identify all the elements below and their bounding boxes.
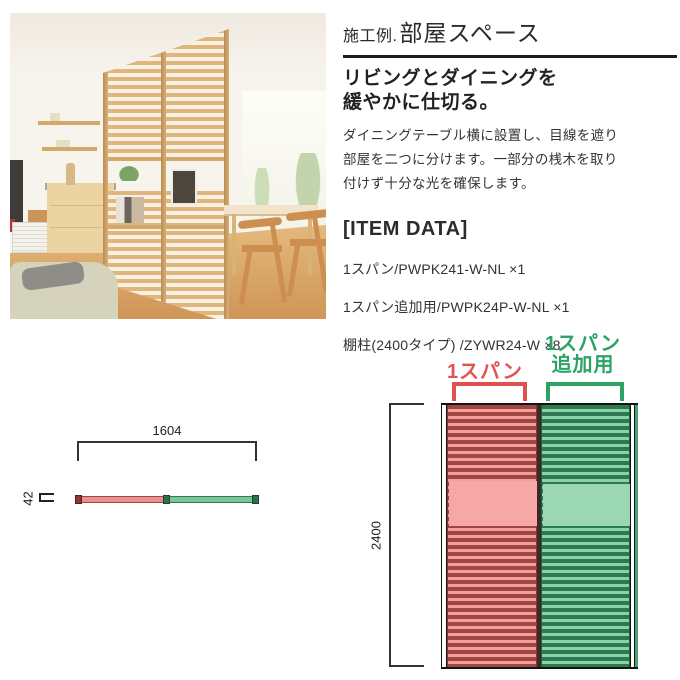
width-dimension-tick-right [255, 441, 257, 461]
height-dimension-cap-bottom [389, 665, 424, 667]
photo-slat-partition [103, 29, 229, 319]
width-dimension-line [77, 441, 257, 443]
span1-open-section [449, 481, 537, 526]
front-view-panels [441, 403, 638, 669]
height-dimension-cap-top [389, 403, 424, 405]
height-dimension-line [389, 403, 391, 667]
photo-drawer-line [50, 205, 110, 206]
photo-partition-post-middle [161, 29, 166, 319]
span2-label: 1スパン 追加用 [534, 334, 632, 376]
photo-partition-shelf-2 [103, 225, 229, 229]
top-view-post-right [252, 495, 259, 504]
height-dimension-label: 2400 [369, 515, 384, 557]
photo-partition-books [116, 197, 144, 223]
photo-table-leg [232, 214, 236, 276]
title-main: 部屋スペース [399, 14, 540, 48]
span2-label-line-2: 追加用 [534, 355, 632, 376]
item-line-2: 1スパン追加用/PWPK24P-W-NL ×1 [343, 297, 677, 317]
subtitle-line-1: リビングとダイニングを [343, 67, 677, 91]
span2-open-section [543, 484, 630, 526]
top-view-post-left [75, 495, 82, 504]
top-view-post-middle [163, 495, 170, 504]
description-line-2: 部屋を二つに分けます。一部分の桟木を取り [343, 148, 677, 172]
page-title: 施工例. 部屋スペース [343, 14, 677, 58]
span1-bracket [452, 382, 527, 401]
description: ダイニングテーブル横に設置し、目線を遮り 部屋を二つに分けます。一部分の桟木を取… [343, 124, 677, 196]
description-line-1: ダイニングテーブル横に設置し、目線を遮り [343, 124, 677, 148]
span1-label: 1スパン [435, 355, 535, 384]
top-view-span2-segment [167, 496, 257, 503]
description-line-3: 付けず十分な光を確保します。 [343, 172, 677, 196]
panel-edge-strip-right [635, 405, 638, 667]
example-room-photo [10, 13, 326, 319]
title-prefix: 施工例. [343, 22, 397, 46]
item-data-heading: [ITEM DATA] [343, 218, 677, 241]
photo-cutting-board [66, 163, 75, 185]
item-line-1: 1スパン/PWPK241-W-NL ×1 [343, 259, 677, 279]
span2-bracket [546, 382, 624, 401]
photo-shelf-item [50, 113, 60, 121]
span2-label-line-1: 1スパン [534, 334, 632, 355]
top-view-span1-segment [77, 496, 167, 503]
span2-panel [541, 405, 630, 667]
span1-panel [447, 405, 537, 667]
width-dimension-label: 1604 [77, 423, 257, 438]
photo-wall-shelf-2 [42, 147, 97, 151]
top-view-panel-bar [77, 496, 257, 503]
photo-tv [10, 160, 23, 226]
photo-wall-shelf [38, 121, 100, 125]
subtitle-line-2: 緩やかに仕切る。 [343, 91, 677, 115]
depth-dimension-label: 42 [21, 484, 36, 514]
width-dimension-tick-left [77, 441, 79, 461]
photo-partition-shelf [103, 157, 229, 161]
photo-shelf-item-2 [56, 140, 70, 147]
photo-partition-plant [118, 165, 140, 181]
subtitle: リビングとダイニングを 緩やかに仕切る。 [343, 67, 677, 115]
photo-partition-post-right [224, 29, 229, 319]
product-info-column: 施工例. 部屋スペース リビングとダイニングを 緩やかに仕切る。 ダイニングテー… [343, 14, 677, 355]
depth-dimension-bracket [39, 493, 54, 502]
photo-drawer-line [50, 227, 110, 228]
photo-partition-artbook [171, 169, 197, 205]
